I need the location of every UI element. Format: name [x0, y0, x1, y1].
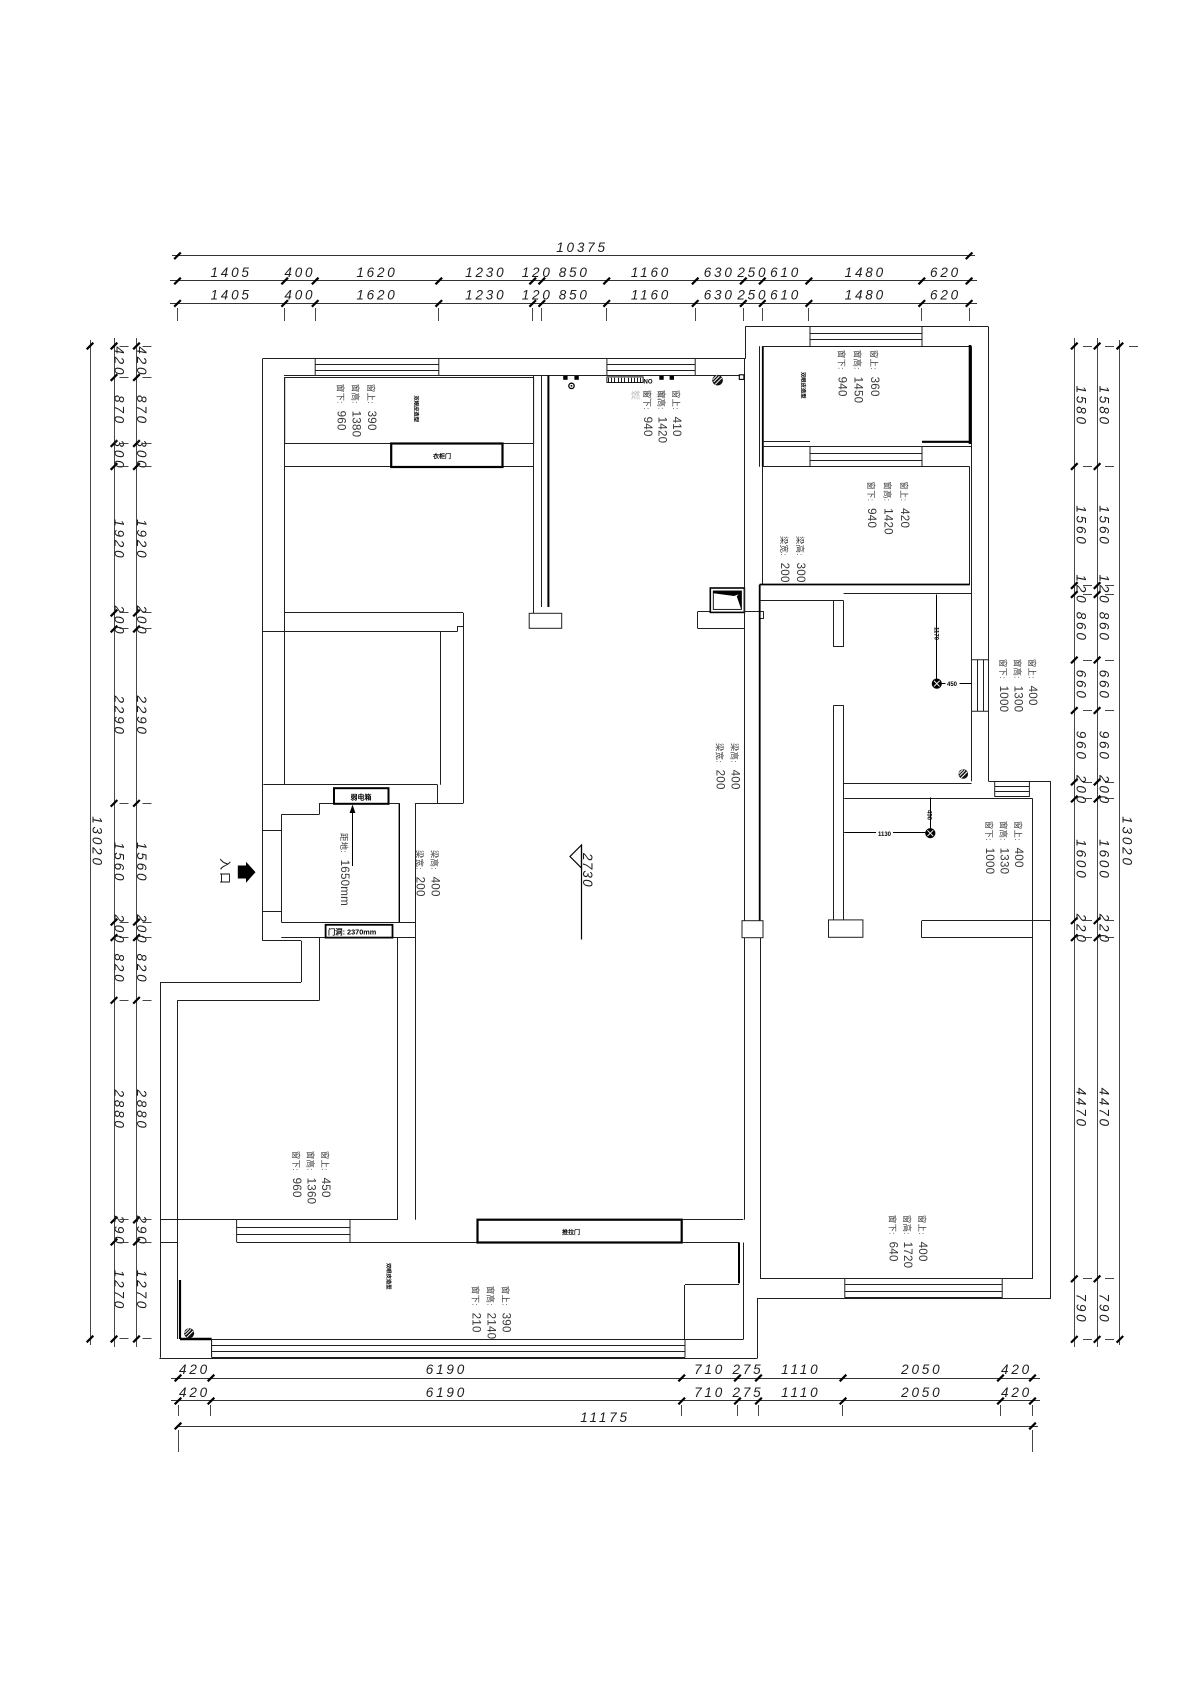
svg-text:窗上: 450: 窗上: 450	[319, 1151, 332, 1198]
svg-text:NO: NO	[644, 380, 653, 386]
svg-text:4470: 4470	[1096, 1088, 1111, 1129]
svg-text:13020: 13020	[1119, 816, 1134, 868]
svg-text:窗高: 1720: 窗高: 1720	[901, 1215, 914, 1268]
svg-text:1560: 1560	[1074, 505, 1089, 546]
svg-text:300: 300	[112, 440, 127, 471]
svg-text:窗高: 1450: 窗高: 1450	[852, 350, 865, 403]
svg-text:窗高: 2140: 窗高: 2140	[485, 1286, 498, 1339]
svg-text:距地: 1650mm: 距地: 1650mm	[338, 833, 351, 906]
svg-text:960: 960	[1096, 731, 1111, 762]
svg-text:850: 850	[559, 265, 590, 280]
svg-text:300: 300	[134, 440, 149, 471]
svg-text:2290: 2290	[134, 694, 149, 736]
svg-text:610: 610	[770, 288, 801, 303]
svg-text:6190: 6190	[426, 1362, 467, 1377]
svg-text:窗下: 1000: 窗下: 1000	[983, 821, 996, 874]
svg-text:620: 620	[930, 288, 961, 303]
svg-text:1270: 1270	[112, 1270, 127, 1311]
svg-text:400: 400	[284, 265, 315, 280]
svg-text:窗上: 390: 窗上: 390	[500, 1286, 513, 1333]
svg-text:220: 220	[1074, 913, 1089, 945]
svg-text:1580: 1580	[1096, 386, 1111, 427]
svg-text:13020: 13020	[90, 816, 105, 868]
svg-text:双眼皮造型: 双眼皮造型	[385, 1263, 393, 1290]
svg-text:窗下: 940: 窗下: 940	[835, 350, 848, 397]
svg-text:窗下: 940: 窗下: 940	[641, 390, 654, 437]
svg-text:2050: 2050	[900, 1362, 942, 1377]
svg-text:120: 120	[1074, 575, 1089, 606]
svg-text:200: 200	[1074, 774, 1089, 806]
svg-text:6190: 6190	[426, 1385, 467, 1400]
svg-text:870: 870	[134, 395, 149, 426]
svg-text:120: 120	[1096, 575, 1111, 606]
svg-text:870: 870	[112, 395, 127, 426]
svg-text:850: 850	[559, 288, 590, 303]
svg-text:200: 200	[134, 605, 149, 637]
svg-text:窗上: 420: 窗上: 420	[898, 482, 911, 529]
svg-text:1620: 1620	[356, 288, 397, 303]
svg-text:窗高: 1380: 窗高: 1380	[350, 384, 363, 437]
svg-text:120: 120	[522, 265, 553, 280]
svg-text:窗下: 960: 窗下: 960	[290, 1151, 303, 1198]
svg-text:衣柜门: 衣柜门	[433, 453, 451, 461]
svg-text:820: 820	[112, 954, 127, 985]
svg-text:710: 710	[694, 1362, 725, 1377]
svg-text:250: 250	[736, 288, 768, 303]
svg-text:窗下: 640: 窗下: 640	[886, 1215, 899, 1262]
svg-text:窗高: 1360: 窗高: 1360	[304, 1151, 317, 1204]
svg-text:220: 220	[1096, 913, 1111, 945]
svg-text:弱电箱: 弱电箱	[351, 793, 372, 802]
svg-text:10375: 10375	[556, 240, 608, 255]
svg-text:1130: 1130	[878, 832, 892, 838]
svg-text:1270: 1270	[134, 1270, 149, 1311]
svg-text:窗上: 410: 窗上: 410	[670, 390, 683, 437]
svg-text:2290: 2290	[112, 694, 127, 736]
svg-text:梁高: 400: 梁高: 400	[429, 850, 442, 897]
svg-text:11175: 11175	[580, 1410, 630, 1425]
svg-text:790: 790	[1096, 1294, 1111, 1325]
svg-text:200: 200	[112, 913, 127, 945]
svg-text:1560: 1560	[1096, 505, 1111, 546]
svg-text:120: 120	[522, 288, 553, 303]
svg-text:1230: 1230	[465, 288, 506, 303]
svg-text:710: 710	[694, 1385, 725, 1400]
svg-text:2880: 2880	[112, 1088, 127, 1130]
svg-text:420: 420	[179, 1385, 210, 1400]
svg-text:1170: 1170	[933, 627, 939, 641]
svg-text:梁宽: 200: 梁宽: 200	[414, 850, 427, 897]
svg-text:450: 450	[926, 810, 932, 821]
svg-text:梁高: 300: 梁高: 300	[794, 536, 807, 583]
svg-text:窗下: 210: 窗下: 210	[470, 1286, 483, 1333]
svg-text:窗上: 390: 窗上: 390	[365, 384, 378, 431]
svg-text:630: 630	[704, 288, 735, 303]
svg-text:1620: 1620	[356, 265, 397, 280]
svg-text:960: 960	[1074, 731, 1089, 762]
svg-text:窗高: 1300: 窗高: 1300	[1011, 659, 1024, 712]
svg-text:1405: 1405	[210, 288, 251, 303]
svg-text:1920: 1920	[134, 519, 149, 560]
svg-text:200: 200	[1096, 774, 1111, 806]
svg-text:推拉门: 推拉门	[562, 1229, 580, 1237]
svg-text:420: 420	[179, 1362, 210, 1377]
svg-text:1110: 1110	[781, 1362, 820, 1377]
svg-text:门洞: 2370mm: 门洞: 2370mm	[328, 928, 377, 937]
svg-text:窗高: 1420: 窗高: 1420	[882, 482, 895, 535]
svg-text:620: 620	[930, 265, 961, 280]
svg-text:梁宽: 200: 梁宽: 200	[714, 743, 727, 790]
svg-text:630: 630	[704, 265, 735, 280]
svg-text:420: 420	[134, 346, 149, 377]
svg-text:窗高: 1420: 窗高: 1420	[655, 390, 668, 443]
svg-text:200: 200	[134, 913, 149, 945]
svg-text:窗上: 400: 窗上: 400	[1026, 659, 1039, 706]
svg-text:窗高: 1330: 窗高: 1330	[997, 821, 1010, 874]
svg-text:1600: 1600	[1096, 839, 1111, 880]
svg-text:1480: 1480	[845, 265, 886, 280]
svg-text:1160: 1160	[631, 265, 671, 280]
svg-text:梁宽: 200: 梁宽: 200	[778, 536, 791, 583]
svg-text:820: 820	[134, 954, 149, 985]
svg-text:420: 420	[1001, 1385, 1032, 1400]
svg-text:窗上: 400: 窗上: 400	[1012, 821, 1025, 868]
svg-text:1600: 1600	[1074, 839, 1089, 880]
svg-text:860: 860	[1096, 612, 1111, 643]
svg-text:1560: 1560	[134, 842, 149, 883]
svg-text:1405: 1405	[210, 265, 251, 280]
svg-text:双眼皮造型: 双眼皮造型	[800, 372, 808, 399]
svg-text:窗下: 960: 窗下: 960	[334, 384, 347, 431]
svg-text:1580: 1580	[1074, 386, 1089, 427]
svg-text:1160: 1160	[631, 288, 671, 303]
svg-text:窗上: 400: 窗上: 400	[916, 1215, 929, 1262]
svg-text:660: 660	[1074, 670, 1089, 701]
svg-text:400: 400	[284, 288, 315, 303]
svg-text:1480: 1480	[845, 288, 886, 303]
svg-text:双眼皮造型: 双眼皮造型	[413, 396, 421, 423]
svg-text:梁高: 400: 梁高: 400	[729, 743, 742, 790]
svg-text:610: 610	[770, 265, 801, 280]
svg-text:1230: 1230	[465, 265, 506, 280]
svg-text:4470: 4470	[1074, 1088, 1089, 1129]
svg-text:入口: 入口	[218, 858, 232, 886]
svg-text:250: 250	[736, 265, 768, 280]
svg-text:窗下: 940: 窗下: 940	[865, 482, 878, 529]
svg-text:2730: 2730	[580, 852, 595, 888]
svg-text:450: 450	[947, 682, 958, 688]
svg-text:660: 660	[1096, 670, 1111, 701]
svg-text:420: 420	[1001, 1362, 1032, 1377]
svg-text:860: 860	[1074, 612, 1089, 643]
svg-text:275: 275	[732, 1385, 764, 1400]
svg-text:2880: 2880	[134, 1088, 149, 1130]
svg-text:1110: 1110	[781, 1385, 820, 1400]
svg-text:2050: 2050	[900, 1385, 942, 1400]
svg-text:200: 200	[112, 605, 127, 637]
svg-text:790: 790	[1074, 1294, 1089, 1325]
svg-text:窗上: 360: 窗上: 360	[868, 350, 881, 397]
svg-text:420: 420	[112, 346, 127, 377]
svg-text:1920: 1920	[112, 519, 127, 560]
svg-text:1560: 1560	[112, 842, 127, 883]
svg-text:275: 275	[732, 1362, 764, 1377]
svg-text:窗下: 1000: 窗下: 1000	[997, 659, 1010, 712]
